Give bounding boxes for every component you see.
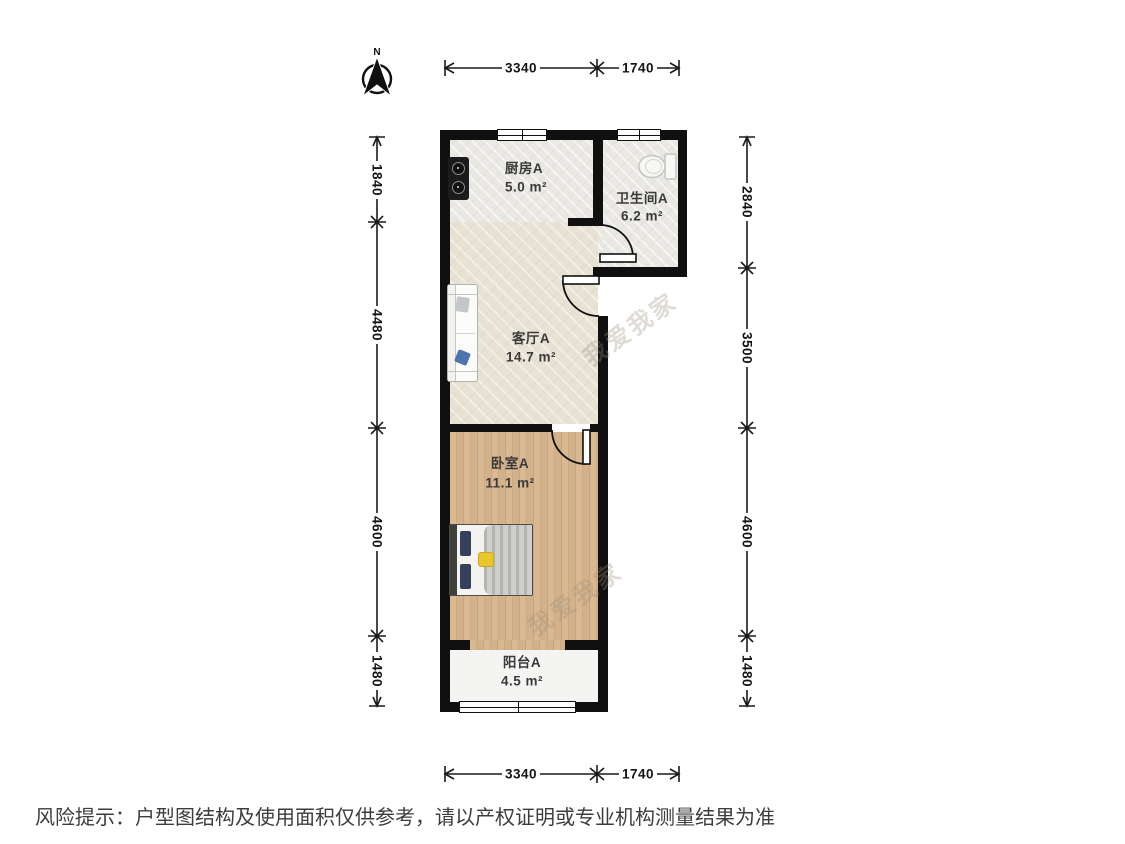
dim-top-1: 3340 — [502, 61, 540, 76]
living-label: 客厅A — [512, 327, 550, 347]
dim-left-2: 4480 — [370, 306, 385, 344]
dimension-lines — [0, 0, 1125, 844]
bathroom-area-label: 6.2 m² — [621, 209, 663, 224]
dim-right-1: 2840 — [740, 183, 755, 221]
dim-bottom-2: 1740 — [619, 767, 657, 782]
dim-right-2: 3500 — [740, 329, 755, 367]
dim-bottom-1: 3340 — [502, 767, 540, 782]
floorplan-canvas: N — [0, 0, 1125, 844]
dim-top-2: 1740 — [619, 61, 657, 76]
bedroom-area-label: 11.1 m² — [485, 476, 534, 491]
living-area-label: 14.7 m² — [506, 350, 556, 365]
balcony-area-label: 4.5 m² — [501, 674, 543, 689]
dim-left-4: 1480 — [370, 652, 385, 690]
dim-left-3: 4600 — [370, 513, 385, 551]
kitchen-label: 厨房A — [505, 157, 543, 177]
disclaimer-text: 风险提示：户型图结构及使用面积仅供参考，请以产权证明或专业机构测量结果为准 — [35, 801, 775, 830]
dim-right-3: 4600 — [740, 513, 755, 551]
kitchen-area-label: 5.0 m² — [505, 180, 547, 195]
bathroom-label: 卫生间A — [616, 187, 668, 207]
dim-left-1: 1840 — [370, 161, 385, 199]
bedroom-label: 卧室A — [491, 452, 529, 472]
dim-right-4: 1480 — [740, 652, 755, 690]
balcony-label: 阳台A — [503, 651, 541, 671]
